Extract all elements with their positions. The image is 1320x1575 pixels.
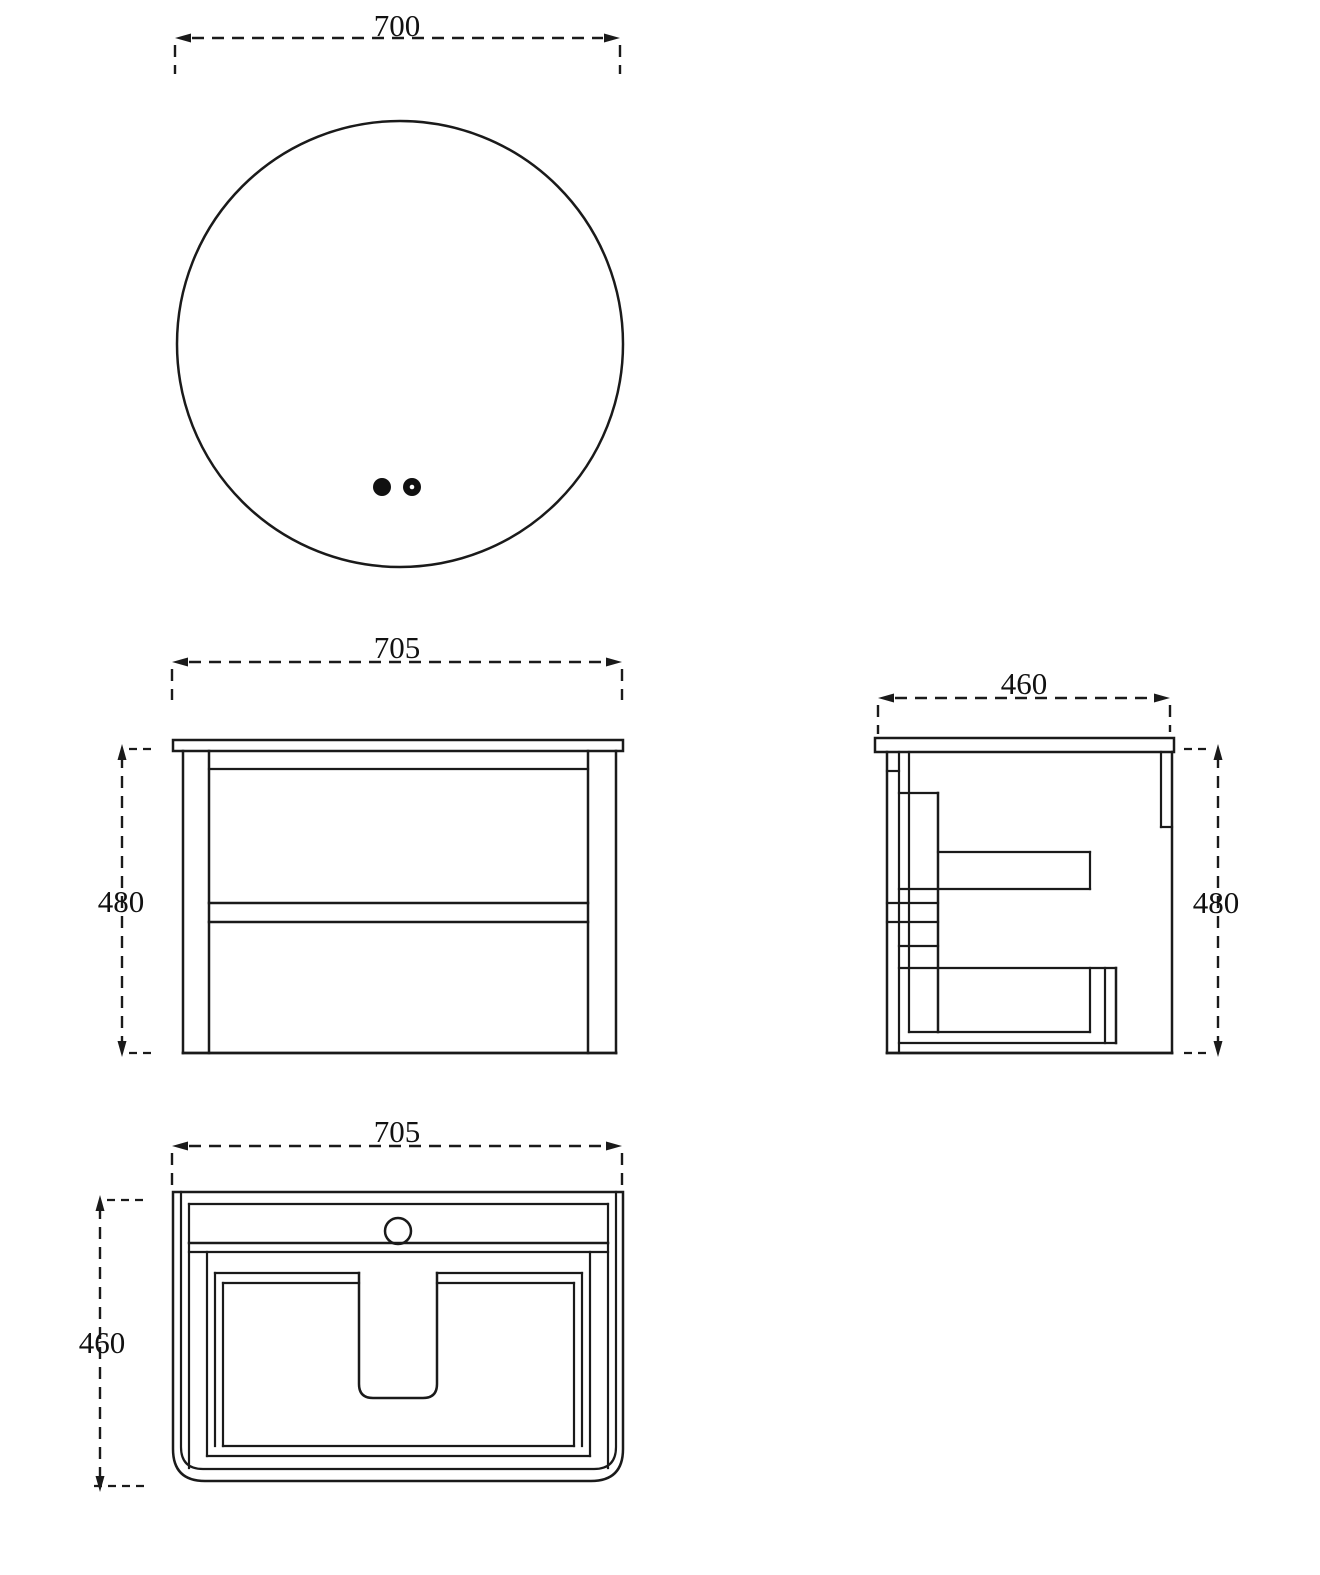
- drain-recess: [359, 1273, 437, 1398]
- mirror-circle: [177, 121, 623, 567]
- dimension-460-side: 460: [878, 666, 1170, 734]
- arrow-left-icon: [878, 694, 894, 703]
- countertop-side: [875, 738, 1174, 752]
- dim-label-side-depth: 460: [1001, 666, 1048, 701]
- mirror-top-view: 700: [175, 8, 623, 567]
- faucet-hole: [385, 1218, 411, 1244]
- cabinet-side-view: 460 480: [875, 666, 1239, 1057]
- cabinet-front-view: 705 480: [98, 630, 623, 1057]
- countertop-front: [173, 740, 623, 751]
- dim-label-side-height: 480: [1193, 885, 1240, 920]
- sensor-dot-left: [373, 478, 391, 496]
- dimension-480-side: 480: [1184, 744, 1239, 1057]
- arrow-right-icon: [604, 34, 620, 43]
- arrow-right-icon: [606, 658, 622, 667]
- dimension-480-front: 480: [98, 744, 155, 1057]
- dimension-705-bottom: 705: [172, 1114, 622, 1186]
- drawing-sheet: 700 705 480: [0, 0, 1320, 1575]
- cabinet-outline-middle: [181, 1192, 616, 1469]
- dim-label-mirror-width: 700: [374, 8, 421, 43]
- dim-label-bottom-width: 705: [374, 1114, 421, 1149]
- arrow-left-icon: [175, 34, 191, 43]
- dimension-705-front: 705: [172, 630, 622, 700]
- dim-label-front-height: 480: [98, 884, 145, 919]
- arrow-left-icon: [172, 1142, 188, 1151]
- basin-cutout: [207, 1252, 590, 1456]
- dim-label-bottom-depth: 460: [79, 1325, 126, 1360]
- arrow-right-icon: [1154, 694, 1170, 703]
- cabinet-bottom-view: 705 460: [79, 1114, 623, 1492]
- cabinet-outline-outer: [173, 1192, 623, 1481]
- arrow-left-icon: [172, 658, 188, 667]
- arrow-right-icon: [606, 1142, 622, 1151]
- sensor-dot-center: [410, 485, 415, 490]
- dimension-700: 700: [175, 8, 620, 74]
- dimension-460-bottom: 460: [79, 1195, 148, 1492]
- dim-label-front-width: 705: [374, 630, 421, 665]
